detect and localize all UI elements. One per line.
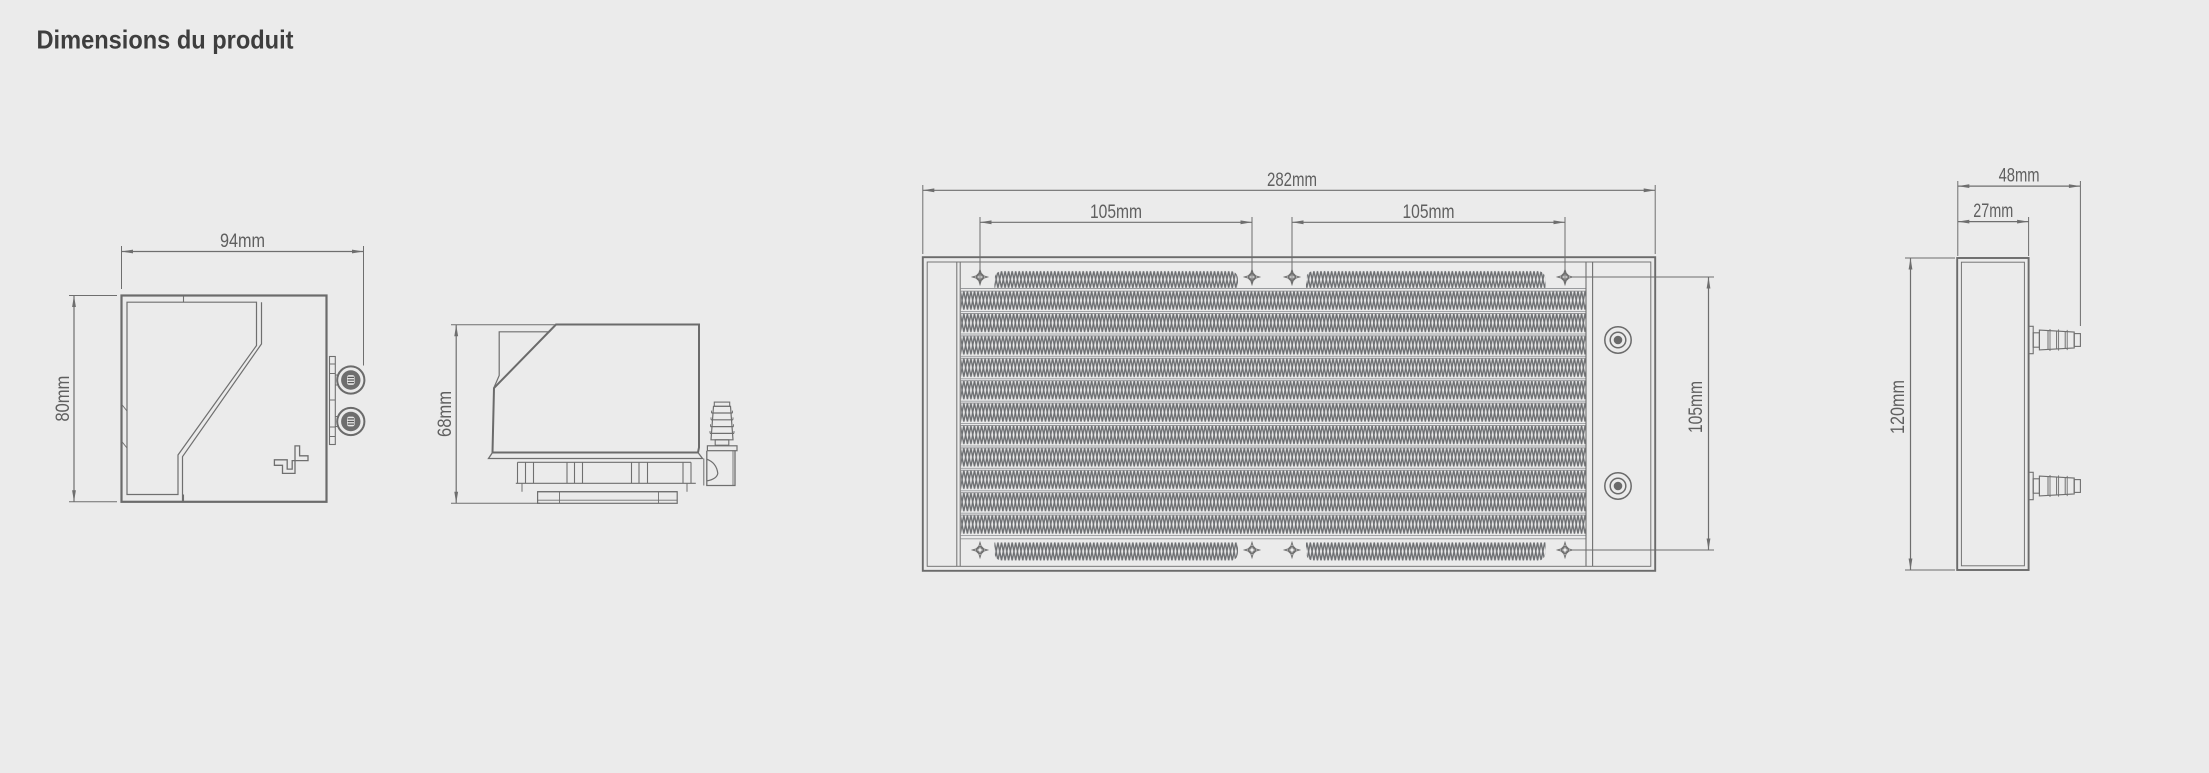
svg-text:68mm: 68mm: [434, 391, 456, 437]
svg-text:Dimensions du produit: Dimensions du produit: [37, 25, 294, 55]
svg-text:105mm: 105mm: [1403, 201, 1455, 223]
svg-text:27mm: 27mm: [1973, 200, 2013, 222]
svg-text:94mm: 94mm: [220, 230, 265, 252]
svg-text:105mm: 105mm: [1685, 381, 1707, 433]
svg-text:282mm: 282mm: [1267, 169, 1317, 191]
svg-text:105mm: 105mm: [1090, 201, 1142, 223]
svg-text:80mm: 80mm: [52, 376, 74, 422]
svg-text:120mm: 120mm: [1887, 380, 1909, 434]
svg-text:48mm: 48mm: [1999, 165, 2040, 187]
